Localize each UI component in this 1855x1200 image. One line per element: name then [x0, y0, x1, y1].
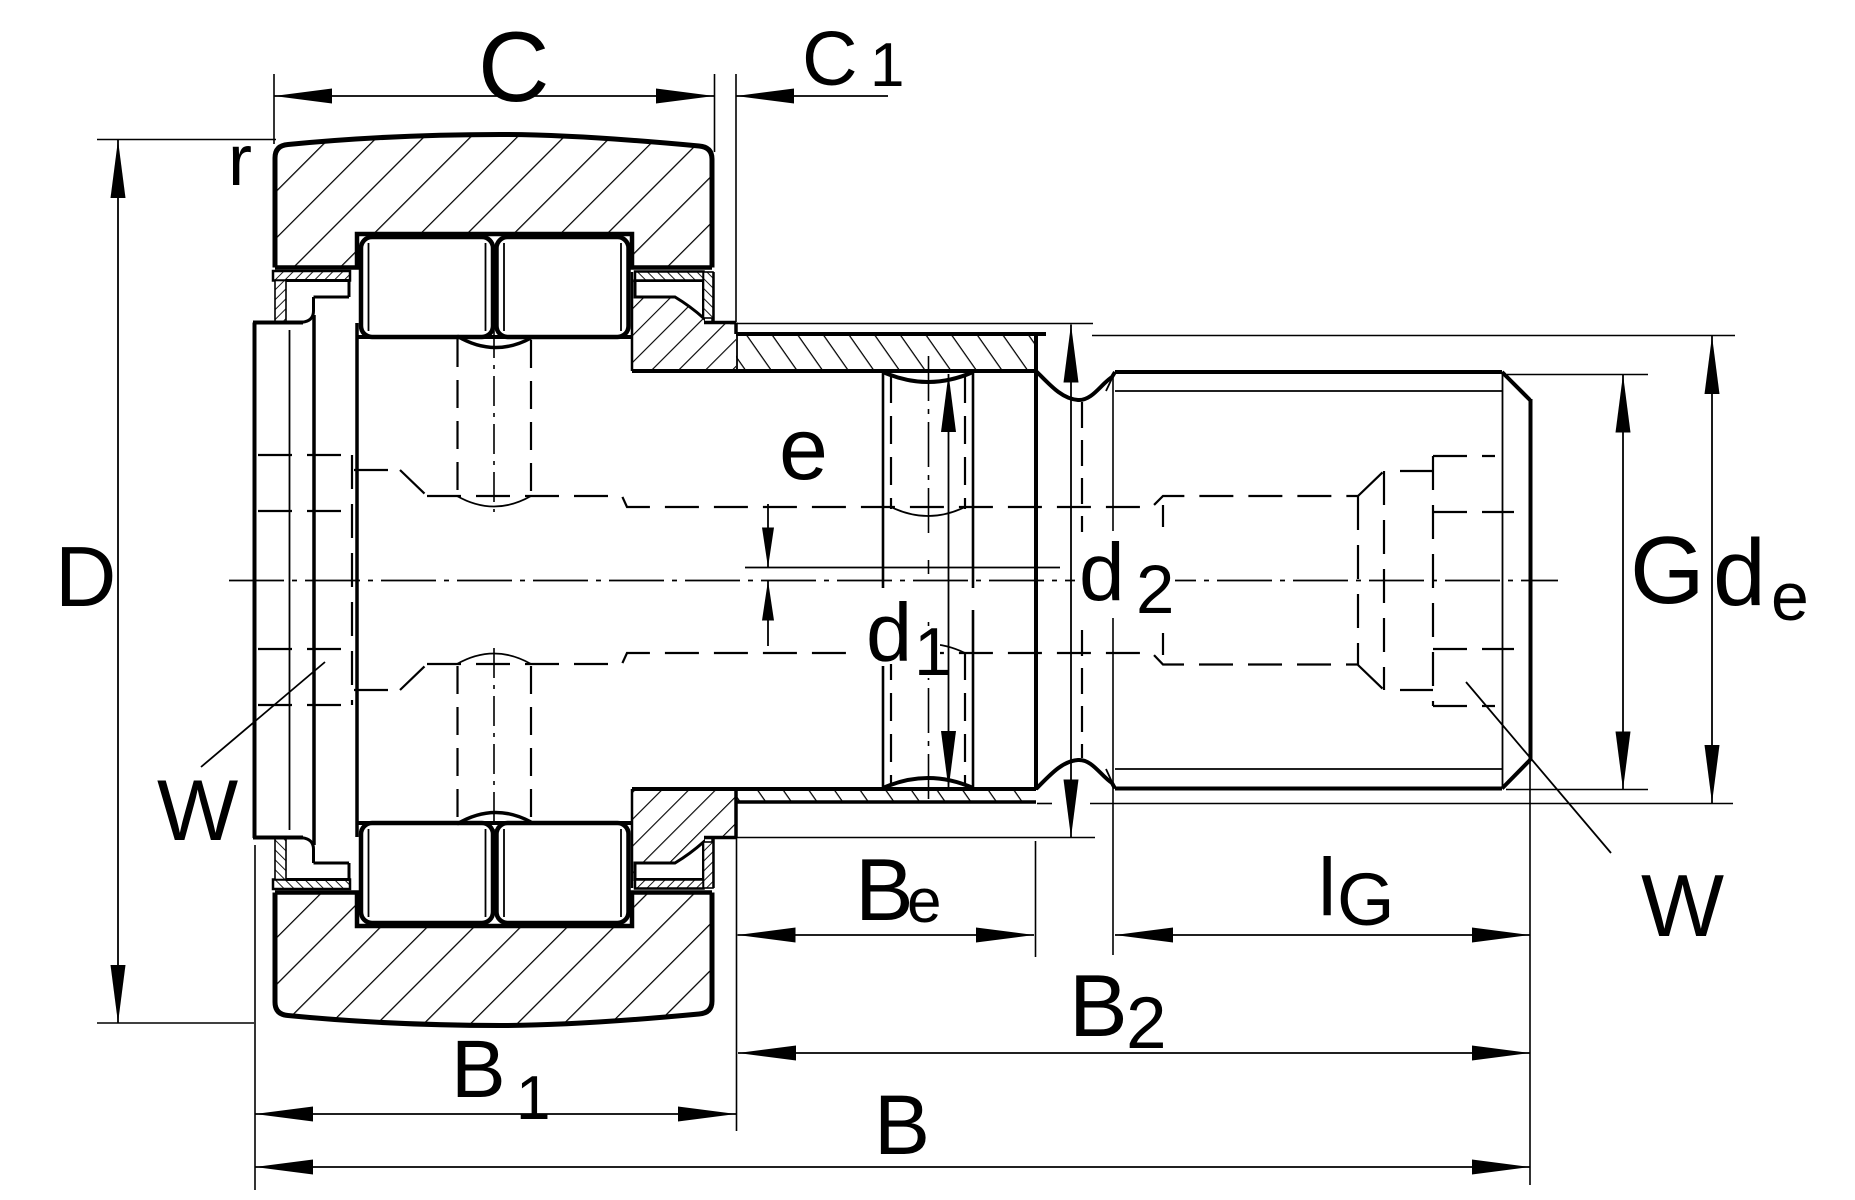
svg-text:r: r: [228, 121, 252, 201]
svg-text:e: e: [907, 867, 941, 936]
svg-text:d: d: [866, 586, 912, 679]
svg-text:G: G: [1630, 517, 1705, 624]
svg-text:D: D: [55, 530, 116, 625]
svg-text:B: B: [855, 840, 914, 939]
svg-text:e: e: [1771, 559, 1809, 635]
svg-text:1: 1: [516, 1064, 550, 1133]
svg-text:d: d: [1713, 520, 1766, 626]
svg-text:l: l: [1318, 842, 1336, 933]
svg-text:1: 1: [914, 614, 952, 690]
svg-text:W: W: [157, 763, 238, 859]
svg-text:B: B: [874, 1078, 930, 1172]
svg-text:B: B: [1069, 956, 1128, 1055]
svg-text:2: 2: [1126, 983, 1167, 1064]
svg-text:e: e: [779, 399, 828, 498]
svg-text:C: C: [478, 11, 550, 122]
svg-text:W: W: [1641, 856, 1724, 955]
svg-text:C: C: [802, 16, 858, 102]
svg-text:1: 1: [870, 31, 904, 100]
svg-text:B: B: [451, 1024, 506, 1115]
svg-text:G: G: [1337, 858, 1395, 941]
svg-text:2: 2: [1136, 551, 1174, 628]
svg-text:d: d: [1079, 527, 1125, 618]
